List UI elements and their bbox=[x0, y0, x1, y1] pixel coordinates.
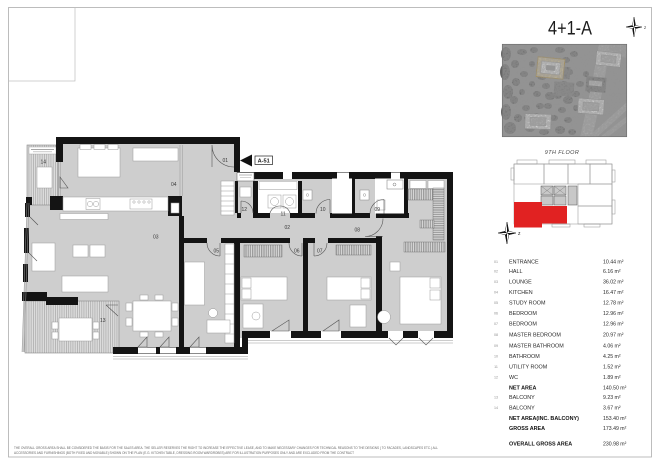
svg-text:09: 09 bbox=[494, 344, 498, 348]
svg-text:08: 08 bbox=[494, 333, 498, 337]
svg-text:THE OVERALL GROSS AREA SHALL B: THE OVERALL GROSS AREA SHALL BE CONSIDER… bbox=[14, 446, 438, 450]
svg-text:07: 07 bbox=[494, 322, 498, 326]
svg-text:12.96 m²: 12.96 m² bbox=[603, 311, 624, 317]
svg-text:10: 10 bbox=[494, 355, 498, 359]
svg-text:02: 02 bbox=[494, 270, 498, 274]
svg-text:z: z bbox=[518, 231, 521, 237]
svg-text:6.16 m²: 6.16 m² bbox=[603, 269, 621, 275]
svg-text:05: 05 bbox=[494, 301, 498, 305]
svg-text:ENTRANCE: ENTRANCE bbox=[509, 260, 539, 266]
svg-text:11: 11 bbox=[281, 212, 286, 218]
svg-text:MASTER BATHROOM: MASTER BATHROOM bbox=[509, 344, 564, 350]
svg-text:10.44 m²: 10.44 m² bbox=[603, 260, 624, 266]
svg-text:04: 04 bbox=[171, 182, 177, 188]
svg-text:4+1-A: 4+1-A bbox=[548, 19, 592, 40]
svg-text:MASTER BEDROOM: MASTER BEDROOM bbox=[509, 333, 561, 339]
svg-text:NET AREA: NET AREA bbox=[509, 386, 536, 392]
svg-text:140.50 m²: 140.50 m² bbox=[603, 386, 627, 392]
svg-text:16.47 m²: 16.47 m² bbox=[603, 290, 624, 296]
svg-text:13: 13 bbox=[494, 396, 498, 400]
svg-text:9.23 m²: 9.23 m² bbox=[603, 395, 621, 401]
svg-text:230.98 m²: 230.98 m² bbox=[603, 442, 627, 448]
svg-text:02: 02 bbox=[285, 225, 291, 231]
svg-text:10: 10 bbox=[320, 207, 326, 213]
svg-text:04: 04 bbox=[494, 291, 498, 295]
svg-text:03: 03 bbox=[494, 280, 498, 284]
svg-text:A-51: A-51 bbox=[258, 159, 270, 165]
svg-text:UTILITY ROOM: UTILITY ROOM bbox=[509, 365, 548, 371]
svg-text:13: 13 bbox=[100, 318, 106, 324]
svg-text:3.67 m²: 3.67 m² bbox=[603, 406, 621, 412]
svg-text:07: 07 bbox=[317, 249, 323, 255]
svg-text:01: 01 bbox=[494, 260, 498, 264]
svg-text:08: 08 bbox=[355, 228, 361, 234]
svg-text:9TH FLOOR: 9TH FLOOR bbox=[545, 150, 579, 156]
svg-text:36.02 m²: 36.02 m² bbox=[603, 280, 624, 286]
svg-text:12: 12 bbox=[242, 207, 248, 213]
svg-text:BEDROOM: BEDROOM bbox=[509, 322, 537, 328]
svg-text:12.78 m²: 12.78 m² bbox=[603, 301, 624, 307]
svg-text:05: 05 bbox=[214, 249, 220, 255]
svg-text:BALCONY: BALCONY bbox=[509, 406, 535, 412]
svg-text:14: 14 bbox=[41, 160, 47, 166]
svg-text:1.52 m²: 1.52 m² bbox=[603, 365, 621, 371]
svg-text:12: 12 bbox=[494, 376, 498, 380]
svg-text:12.96 m²: 12.96 m² bbox=[603, 322, 624, 328]
svg-text:LOUNGE: LOUNGE bbox=[509, 280, 532, 286]
svg-text:1.89 m²: 1.89 m² bbox=[603, 375, 621, 381]
svg-text:WC: WC bbox=[509, 375, 518, 381]
svg-text:BEDROOM: BEDROOM bbox=[509, 311, 537, 317]
svg-text:173.49 m²: 173.49 m² bbox=[603, 426, 627, 432]
svg-text:06: 06 bbox=[494, 312, 498, 316]
svg-text:03: 03 bbox=[153, 235, 159, 241]
svg-text:z: z bbox=[644, 25, 647, 30]
svg-text:BALCONY: BALCONY bbox=[509, 395, 535, 401]
svg-text:14: 14 bbox=[494, 406, 498, 410]
svg-text:01: 01 bbox=[223, 158, 229, 164]
svg-text:09: 09 bbox=[375, 207, 381, 213]
svg-text:20.97 m²: 20.97 m² bbox=[603, 333, 624, 339]
svg-text:BATHROOM: BATHROOM bbox=[509, 354, 540, 360]
svg-text:NET AREA(INC. BALCONY): NET AREA(INC. BALCONY) bbox=[509, 416, 579, 422]
svg-text:11: 11 bbox=[494, 365, 498, 369]
svg-text:4.25 m²: 4.25 m² bbox=[603, 354, 621, 360]
svg-text:STUDY ROOM: STUDY ROOM bbox=[509, 301, 546, 307]
svg-text:OVERALL GROSS AREA: OVERALL GROSS AREA bbox=[509, 442, 572, 448]
svg-text:GROSS AREA: GROSS AREA bbox=[509, 426, 545, 432]
svg-text:ACCESSORIES AND FURNISHINGS (B: ACCESSORIES AND FURNISHINGS (BOTH FIXED … bbox=[14, 451, 354, 455]
svg-text:06: 06 bbox=[294, 249, 300, 255]
svg-text:153.40 m²: 153.40 m² bbox=[603, 416, 627, 422]
svg-text:4.06 m²: 4.06 m² bbox=[603, 344, 621, 350]
svg-text:KITCHEN: KITCHEN bbox=[509, 290, 533, 296]
svg-text:HALL: HALL bbox=[509, 269, 523, 275]
